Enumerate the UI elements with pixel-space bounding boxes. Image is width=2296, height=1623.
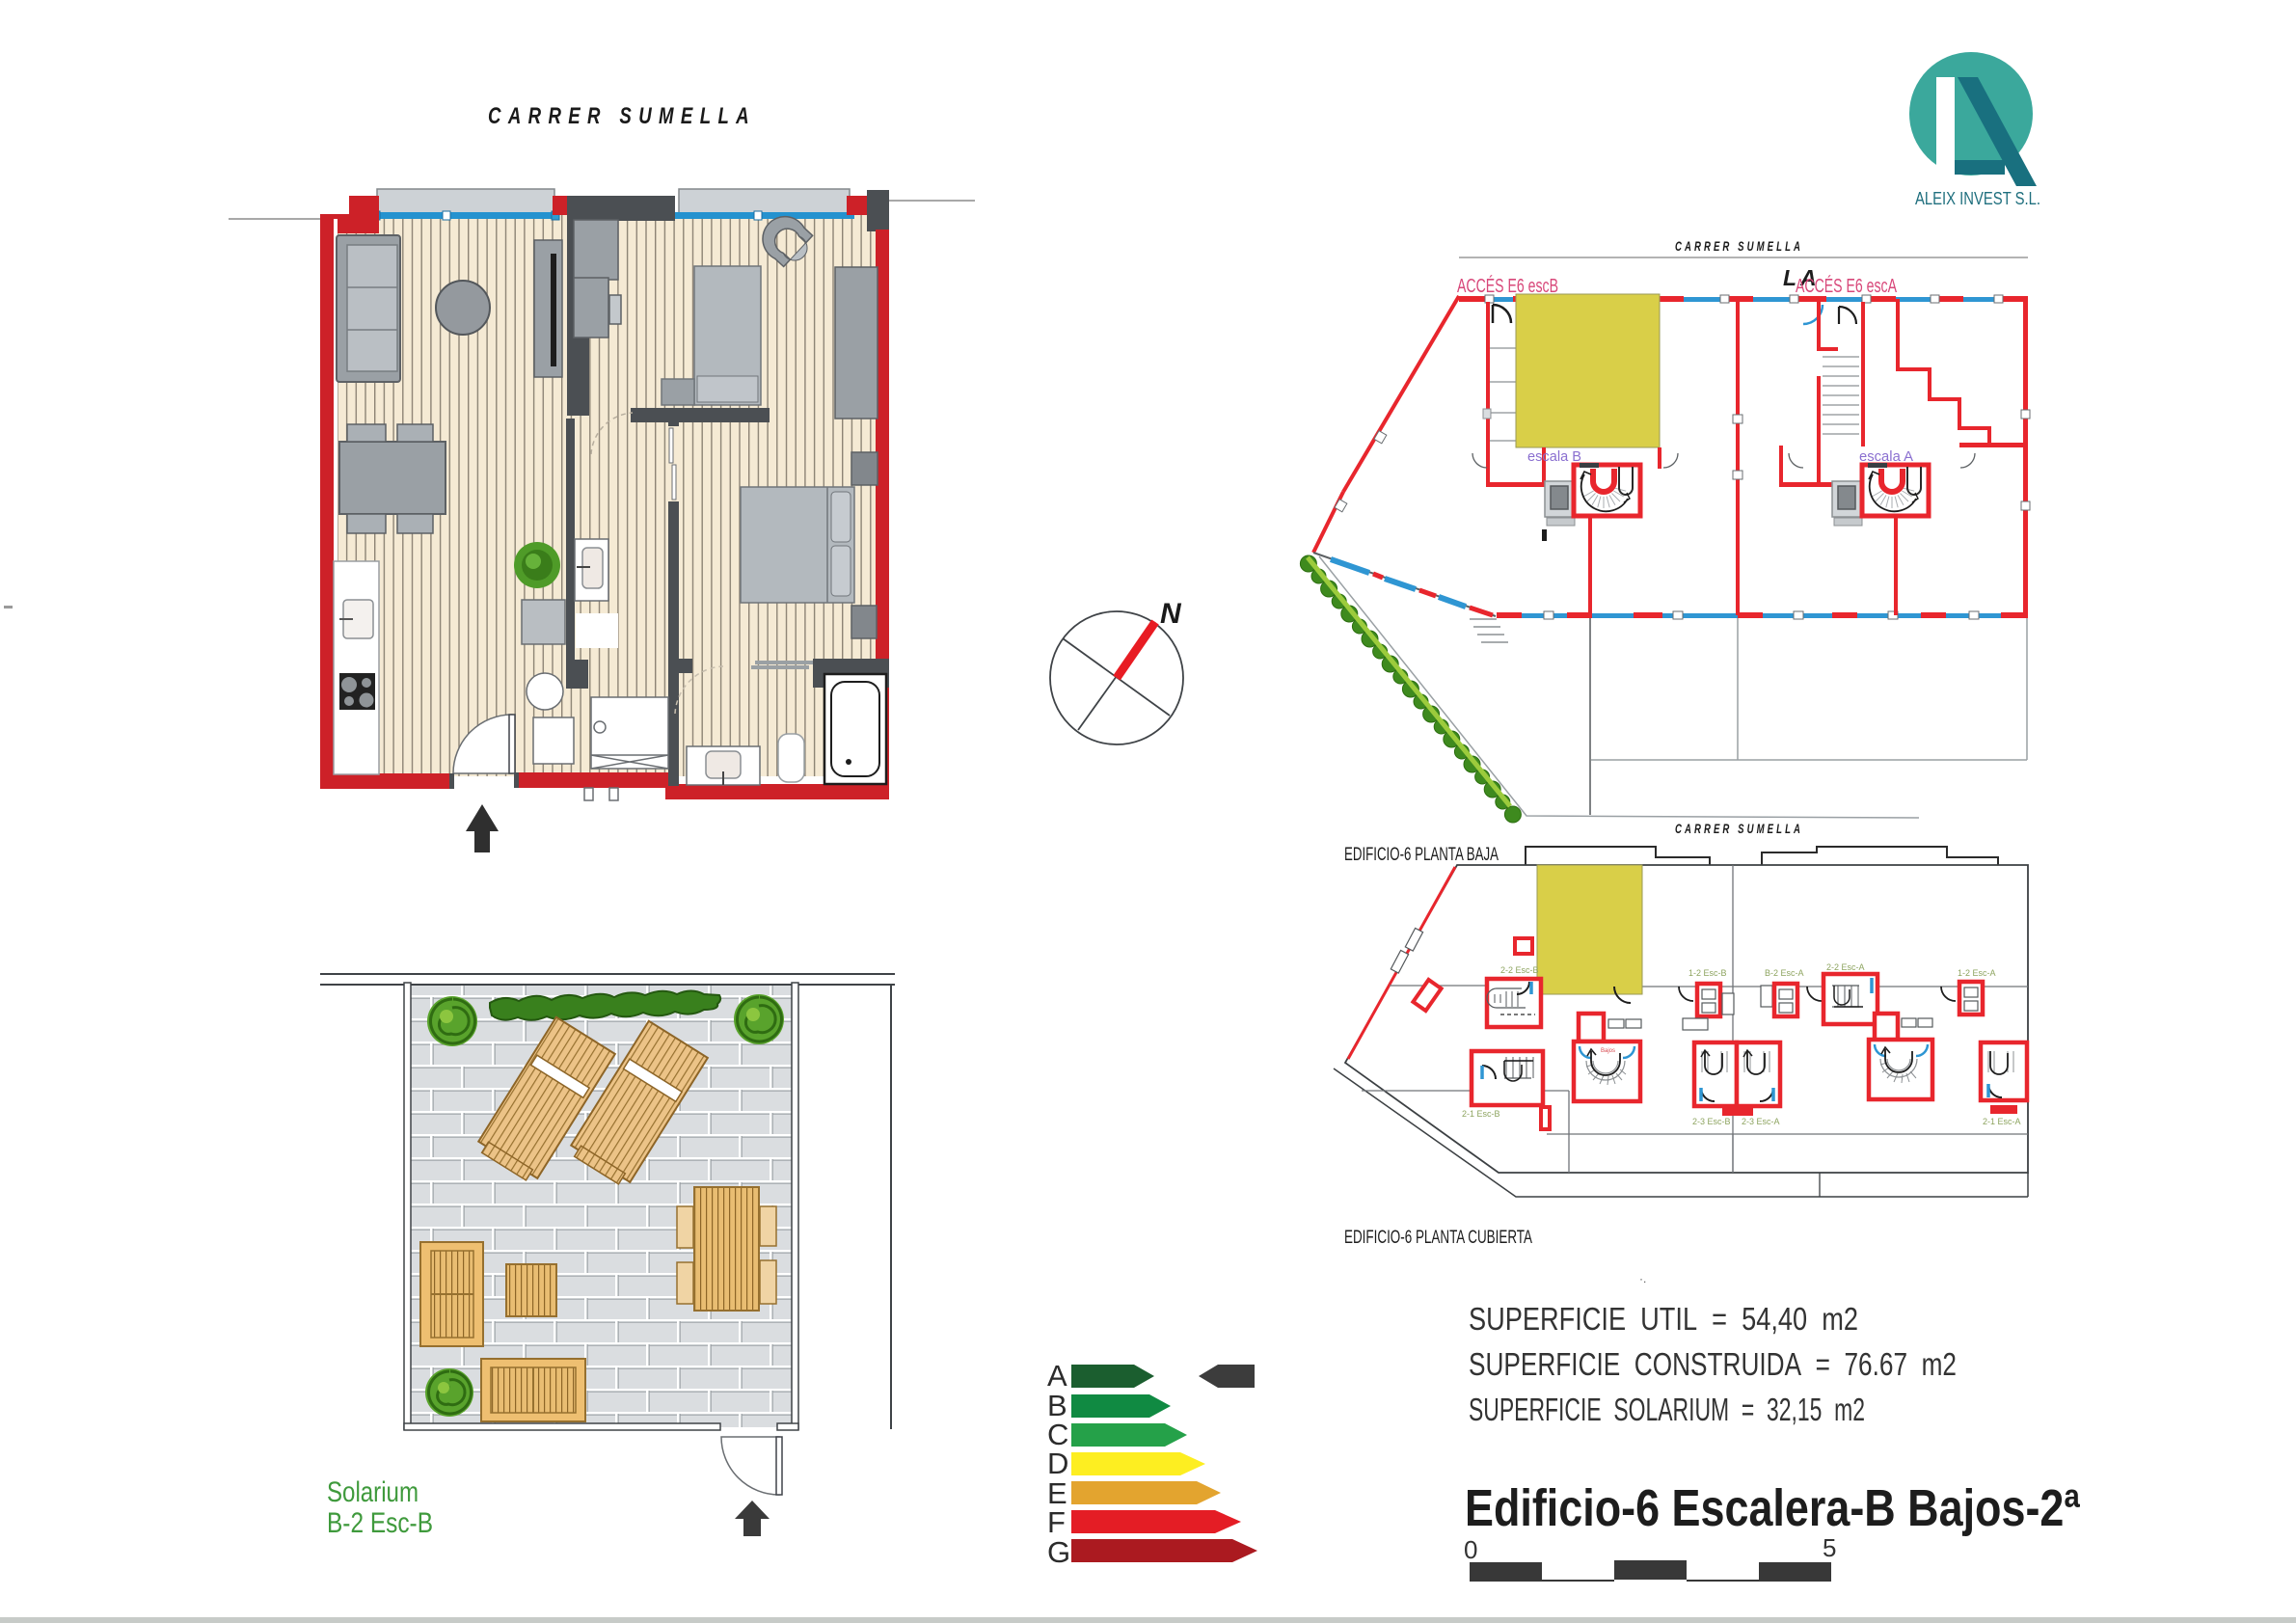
- svg-text:1-2 Esc-B: 1-2 Esc-B: [1688, 968, 1727, 978]
- svg-text:B-2 Esc-B: B-2 Esc-B: [327, 1507, 433, 1539]
- svg-text:2-1 Esc-A: 2-1 Esc-A: [1983, 1117, 2021, 1126]
- svg-text:EDIFICIO-6 PLANTA BAJA: EDIFICIO-6 PLANTA BAJA: [1344, 845, 1499, 865]
- svg-text:2-3 Esc-A: 2-3 Esc-A: [1742, 1117, 1780, 1126]
- svg-text:EDIFICIO-6 PLANTA CUBIERTA: EDIFICIO-6 PLANTA CUBIERTA: [1344, 1228, 1532, 1248]
- svg-text:·.: ·.: [1639, 1272, 1646, 1285]
- svg-text:SUPERFICIE UTIL = 54,40 m2: SUPERFICIE UTIL = 54,40 m2: [1469, 1301, 1858, 1337]
- svg-text:CARRER SUMELLA: CARRER SUMELLA: [1675, 238, 1803, 254]
- svg-text:CARRER SUMELLA: CARRER SUMELLA: [488, 103, 756, 129]
- svg-text:ALEIX INVEST S.L.: ALEIX INVEST S.L.: [1915, 189, 2040, 208]
- svg-text:2-2 Esc-B: 2-2 Esc-B: [1500, 965, 1539, 975]
- svg-text:escala A: escala A: [1859, 448, 1913, 465]
- svg-text:Solarium: Solarium: [327, 1476, 419, 1508]
- svg-text:D: D: [1047, 1447, 1068, 1480]
- svg-text:escala B: escala B: [1527, 448, 1581, 465]
- svg-text:SUPERFICIE SOLARIUM = 32,15: SUPERFICIE SOLARIUM = 32,15 m2: [1469, 1392, 1865, 1427]
- svg-text:B-2 Esc-A: B-2 Esc-A: [1765, 968, 1804, 978]
- svg-text:CARRER SUMELLA: CARRER SUMELLA: [1675, 821, 1803, 836]
- svg-text:F: F: [1047, 1505, 1066, 1539]
- svg-text:A: A: [1047, 1359, 1067, 1393]
- svg-text:2-1 Esc-B: 2-1 Esc-B: [1462, 1109, 1500, 1119]
- svg-text:5: 5: [1823, 1533, 1836, 1562]
- svg-text:2-2 Esc-A: 2-2 Esc-A: [1826, 962, 1865, 972]
- svg-text:2-3 Esc-B: 2-3 Esc-B: [1692, 1117, 1731, 1126]
- svg-text:0: 0: [1464, 1535, 1477, 1564]
- svg-text:Bajos: Bajos: [1601, 1048, 1615, 1054]
- svg-text:G: G: [1047, 1535, 1070, 1569]
- svg-text:Edificio-6 Escalera-B Bajos-2ª: Edificio-6 Escalera-B Bajos-2ª: [1465, 1479, 2080, 1537]
- svg-text:ACCÉS E6 escA: ACCÉS E6 escA: [1796, 275, 1897, 297]
- svg-text:1-2 Esc-A: 1-2 Esc-A: [1958, 968, 1996, 978]
- svg-text:SUPERFICIE CONSTRUIDA = 76.: SUPERFICIE CONSTRUIDA = 76.67 m2: [1469, 1346, 1957, 1382]
- svg-text:N: N: [1160, 598, 1182, 630]
